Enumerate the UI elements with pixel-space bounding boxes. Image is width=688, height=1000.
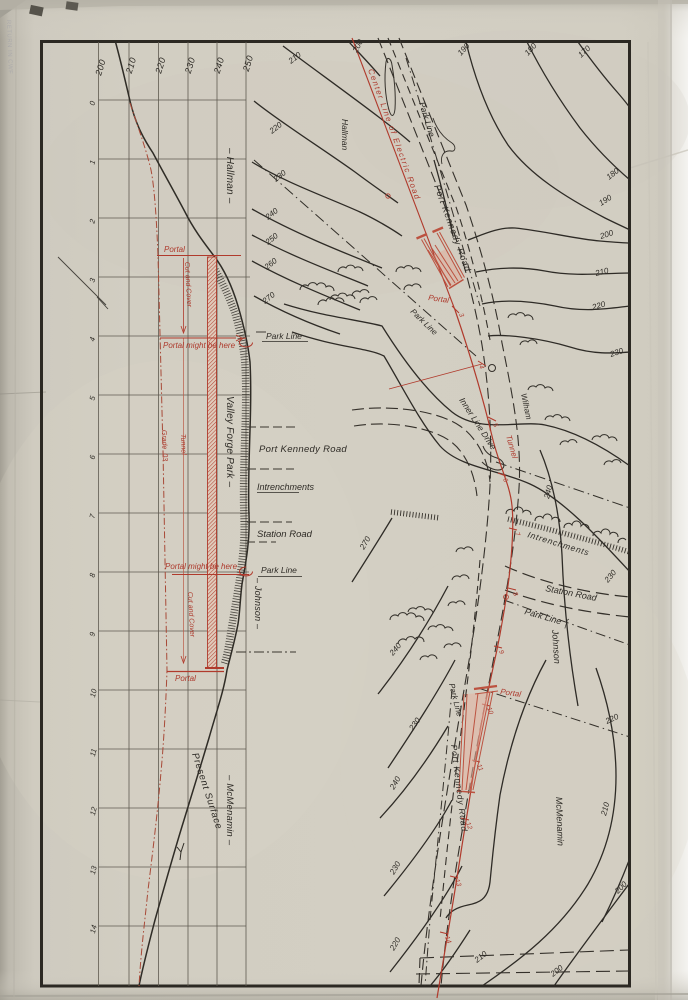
svg-text:Intrenchments: Intrenchments: [257, 482, 315, 492]
svg-text:– McMenamin –: – McMenamin –: [224, 774, 235, 846]
svg-text:Valley Forge Park –: Valley Forge Park –: [224, 396, 235, 487]
svg-text:Park Line: Park Line: [266, 331, 302, 341]
svg-text:Portal: Portal: [175, 674, 196, 683]
svg-text:Port Kennedy Road: Port Kennedy Road: [259, 444, 347, 455]
svg-text:Portal might be here: Portal might be here: [165, 562, 238, 571]
svg-text:– Johnson –: – Johnson –: [253, 577, 263, 630]
svg-text:Portal might be here: Portal might be here: [163, 341, 236, 350]
svg-text:Grade .03: Grade .03: [160, 430, 168, 461]
svg-text:Portal: Portal: [164, 245, 185, 254]
svg-text:Park Line: Park Line: [261, 565, 297, 575]
svg-text:Tunnel: Tunnel: [179, 434, 187, 456]
svg-text:– Hallman –: – Hallman –: [224, 147, 235, 204]
svg-text:McMenamin: McMenamin: [554, 797, 566, 846]
svg-text:Station Road: Station Road: [257, 529, 313, 540]
svg-text:Hallman: Hallman: [340, 119, 350, 150]
